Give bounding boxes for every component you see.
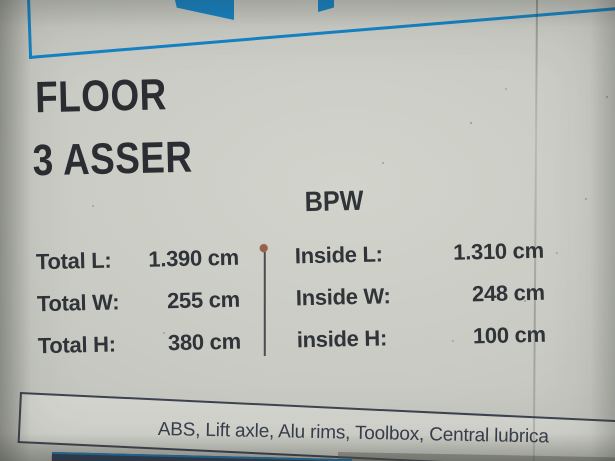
spec-column-inside: Inside L: 1.310 cm Inside W: 248 cm insi… — [295, 238, 547, 370]
spec-row-inside-w: Inside W: 248 cm — [296, 280, 546, 328]
axle-count-subtitle: 3 ASSER — [32, 136, 193, 184]
spec-label: inside H: — [297, 325, 388, 353]
dirt-specks — [0, 0, 2, 2]
document-content: FLOOR 3 ASSER BPW Total L: 1.390 cm Tota… — [0, 0, 615, 461]
spec-label: Inside W: — [296, 283, 391, 311]
page-title: FLOOR — [35, 73, 167, 120]
spec-label: Total H: — [38, 331, 116, 359]
spec-row-total-l: Total L: 1.390 cm — [36, 245, 240, 292]
column-divider-line — [264, 252, 266, 356]
spec-label: Total W: — [37, 289, 120, 317]
spec-row-total-w: Total W: 255 cm — [37, 287, 241, 334]
spec-value: 255 cm — [167, 287, 240, 315]
spec-value: 1.390 cm — [148, 245, 239, 273]
spec-row-total-h: Total H: 380 cm — [38, 329, 242, 376]
spec-value: 1.310 cm — [453, 238, 544, 266]
spec-row-inside-l: Inside L: 1.310 cm — [295, 238, 545, 286]
spec-label: Inside L: — [295, 241, 383, 269]
spec-value: 380 cm — [168, 329, 241, 357]
spec-label: Total L: — [36, 248, 112, 276]
divider-pin-dot-icon — [260, 244, 268, 252]
axle-brand-label: BPW — [304, 187, 363, 216]
spec-row-inside-h: inside H: 100 cm — [297, 322, 547, 370]
spec-sheet-photo: ABS, Lift axle, Alu rims, Toolbox, Centr… — [0, 0, 615, 461]
spec-column-total: Total L: 1.390 cm Total W: 255 cm Total … — [36, 245, 242, 376]
